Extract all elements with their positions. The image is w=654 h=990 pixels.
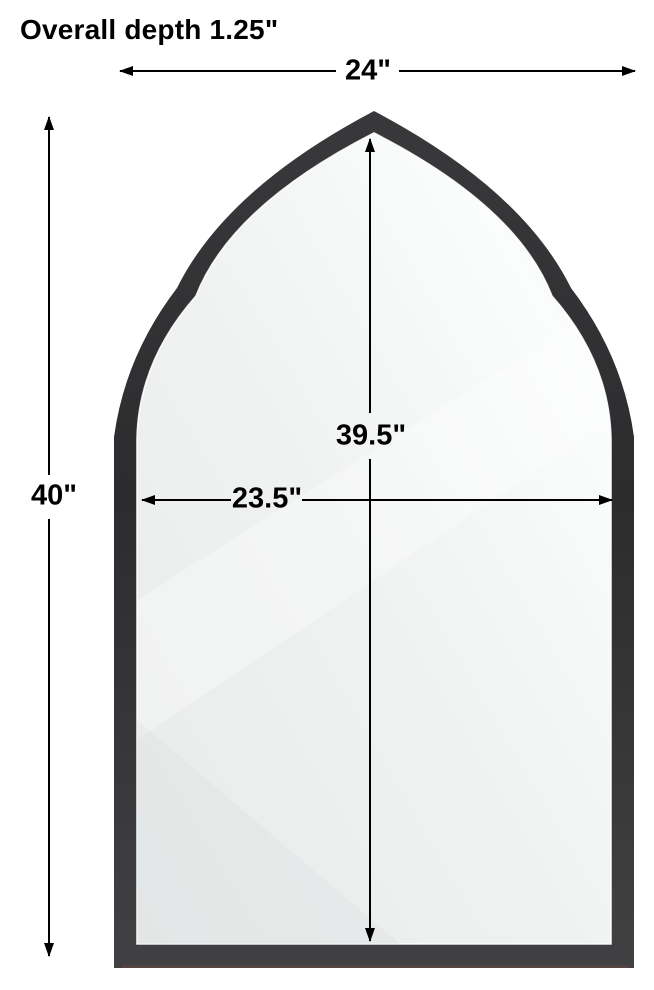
inner-height-label: 39.5" xyxy=(336,422,406,451)
overall-height-label: 40" xyxy=(31,482,77,511)
inner-width-label: 23.5" xyxy=(232,485,302,514)
mirror xyxy=(114,111,634,968)
frame-bottom-reflection xyxy=(122,966,628,969)
overall-depth-label: Overall depth 1.25" xyxy=(20,16,278,44)
overall-width-label: 24" xyxy=(345,57,391,86)
dimension-diagram: Overall depth 1.25" 24" 40" 39.5" 23.5" xyxy=(0,0,654,990)
mirror-diagram-canvas xyxy=(0,0,654,990)
